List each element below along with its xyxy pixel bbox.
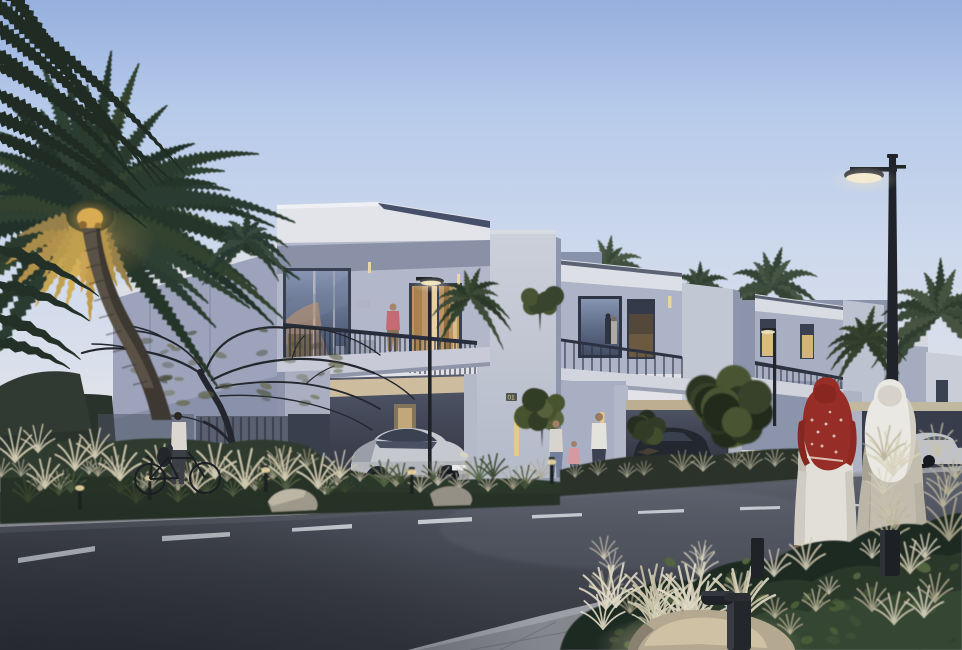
svg-text:01: 01 — [508, 395, 516, 402]
